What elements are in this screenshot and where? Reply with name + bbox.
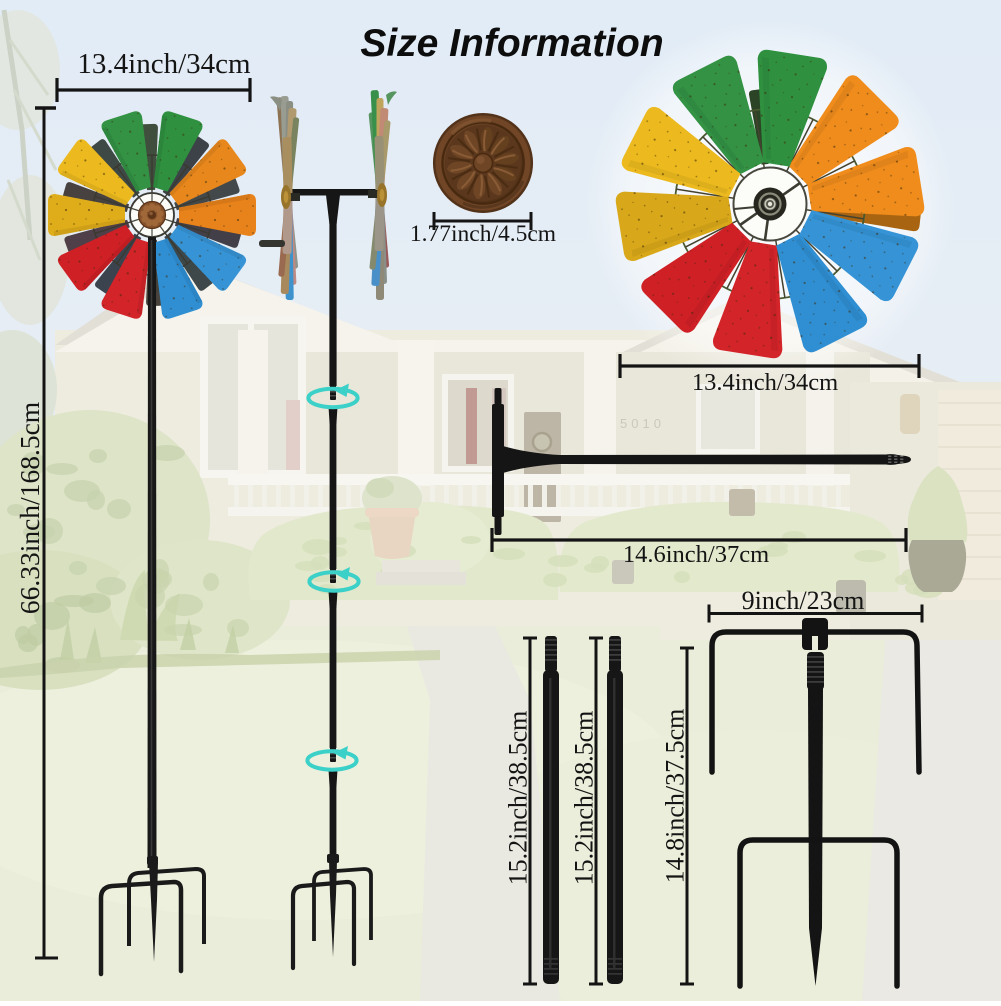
svg-text:13.4inch/34cm: 13.4inch/34cm — [77, 48, 251, 80]
svg-text:66.33inch/168.5cm: 66.33inch/168.5cm — [14, 402, 45, 614]
svg-text:15.2inch/38.5cm: 15.2inch/38.5cm — [570, 711, 599, 886]
svg-text:Size Information: Size Information — [360, 22, 663, 65]
svg-text:15.2inch/38.5cm: 15.2inch/38.5cm — [504, 711, 533, 886]
svg-text:5010: 5010 — [620, 416, 665, 431]
svg-text:13.4inch/34cm: 13.4inch/34cm — [692, 369, 838, 396]
svg-text:1.77inch/4.5cm: 1.77inch/4.5cm — [410, 221, 556, 247]
svg-text:14.8inch/37.5cm: 14.8inch/37.5cm — [661, 709, 690, 884]
svg-text:9inch/23cm: 9inch/23cm — [742, 586, 865, 615]
svg-text:14.6inch/37cm: 14.6inch/37cm — [623, 541, 769, 568]
